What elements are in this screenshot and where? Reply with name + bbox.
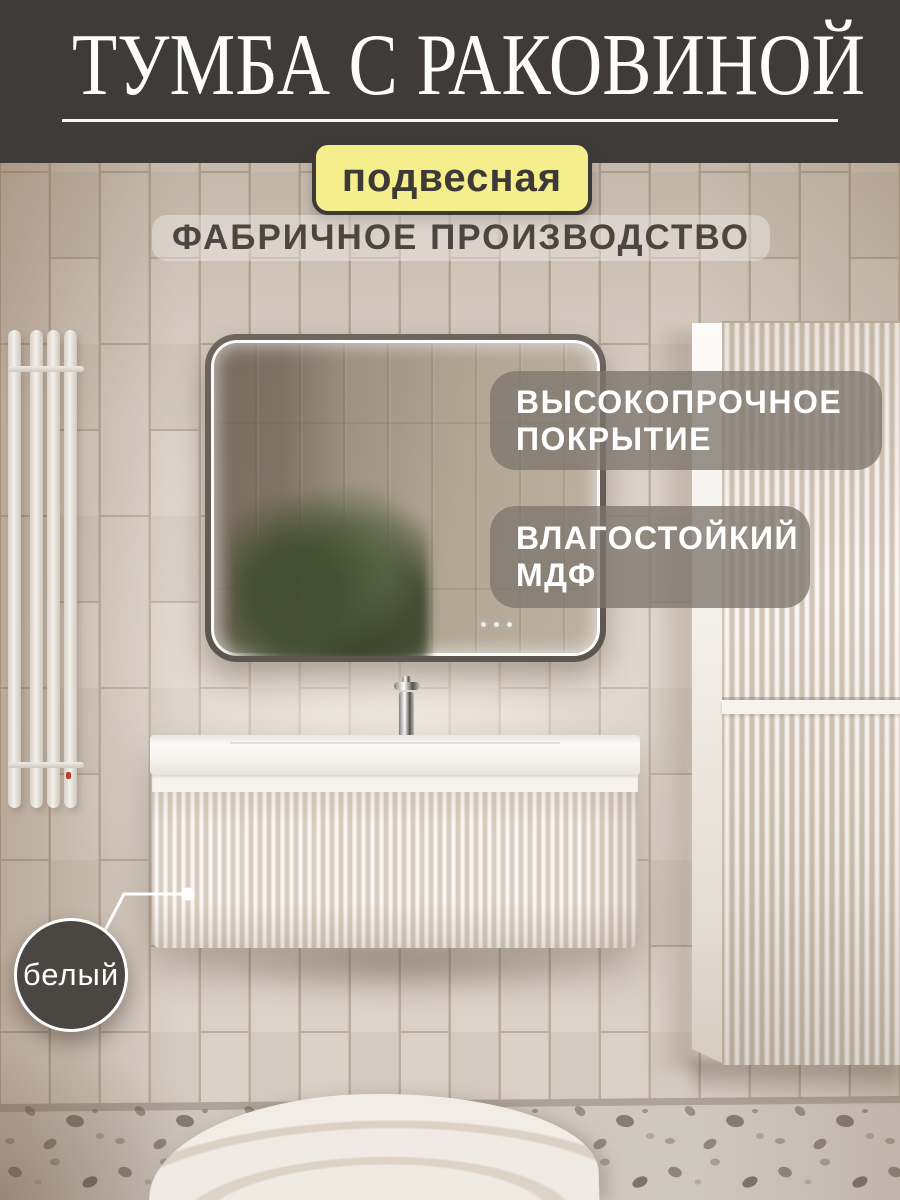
subtitle-ribbon: ФАБРИЧНОЕ ПРОИЗВОДСТВО [152,215,770,261]
vanity-fluted-drawer [152,792,638,948]
feature-badge-coating: ВЫСОКОПРОЧНОЕ ПОКРЫТИЕ [490,371,882,470]
basin-edge [230,742,560,744]
feature-line: МДФ [516,557,810,594]
feature-line: ПОКРЫТИЕ [516,421,882,458]
towel-radiator [6,330,88,808]
cabinet-handle-groove [722,700,900,714]
color-swatch-badge: белый [14,918,128,1032]
vanity-wall-shadow [120,940,680,1020]
title-underline [62,119,838,122]
radiator-tube [47,330,60,808]
mirror-sensor-icon [479,620,488,629]
faucet-handle [394,682,420,690]
radiator-tube [8,330,21,808]
faucet-body [399,692,414,738]
radiator-bracket [8,762,84,768]
mirror-touch-controls [479,620,514,629]
plant-reflection [229,488,429,656]
feature-badge-mdf: ВЛАГОСТОЙКИЙ МДФ [490,506,810,608]
product-title: ТУМБА С РАКОВИНОЙ [72,22,828,110]
feature-line: ВЫСОКОПРОЧНОЕ [516,384,882,421]
vanity-fascia [152,775,638,792]
mirror-sensor-icon [505,620,514,629]
radiator-tube [64,330,77,808]
radiator-indicator-light [66,772,71,779]
feature-line: ВЛАГОСТОЙКИЙ [516,520,810,557]
vanity-unit [150,735,640,948]
mount-type-label: подвесная [342,156,562,201]
faucet [390,674,422,742]
header-banner: ТУМБА С РАКОВИНОЙ [0,0,900,163]
radiator-tube [30,330,43,808]
color-swatch-label: белый [23,957,119,993]
mount-type-tag: подвесная [312,141,592,215]
radiator-bracket [8,366,84,372]
vanity-countertop-sink [150,735,640,775]
mirror-sensor-icon [492,620,501,629]
subtitle-label: ФАБРИЧНОЕ ПРОИЗВОДСТВО [172,218,750,258]
product-card: белый ТУМБА С РАКОВИНОЙ подвесная ФАБРИЧ… [0,0,900,1200]
